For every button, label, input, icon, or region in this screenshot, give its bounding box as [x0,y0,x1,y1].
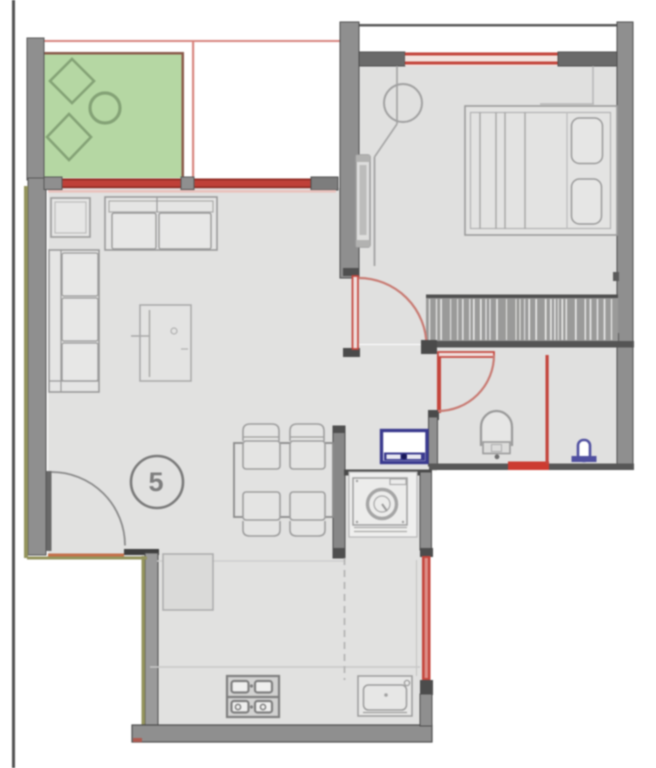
svg-text:5: 5 [148,467,163,497]
